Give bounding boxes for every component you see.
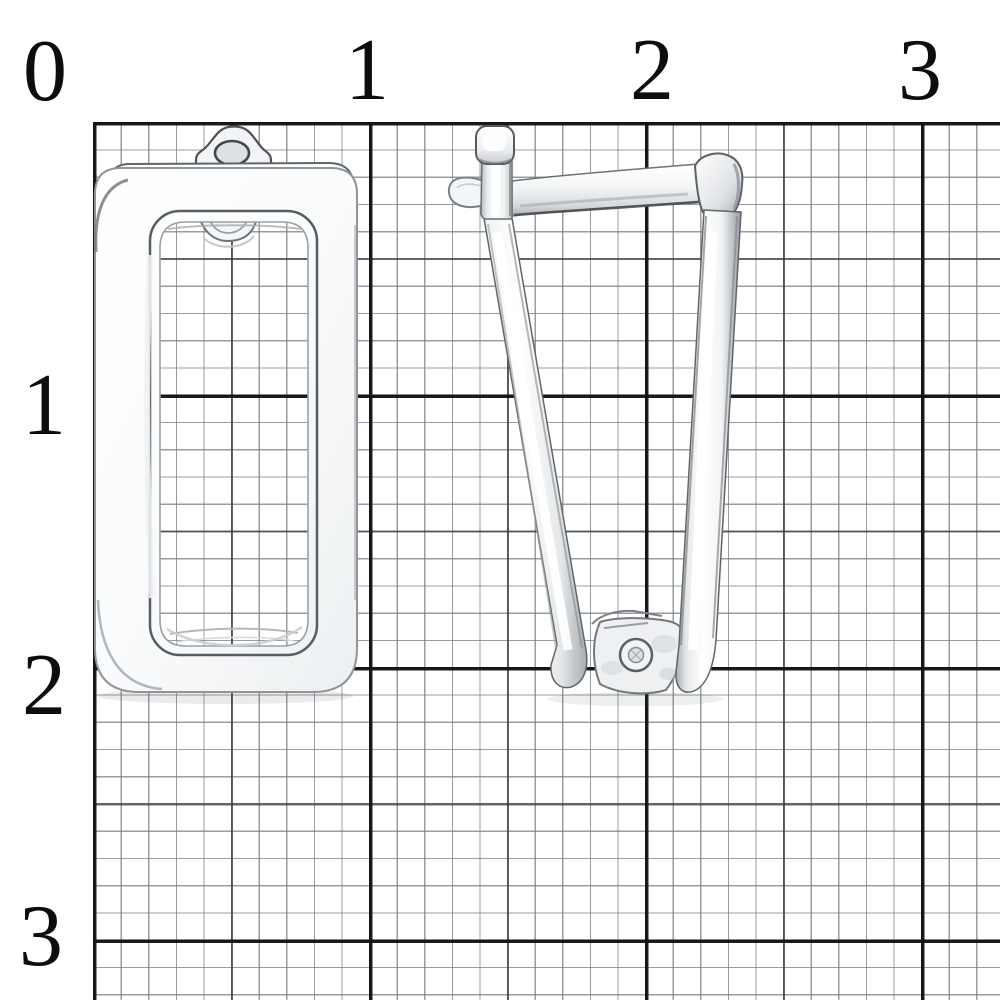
back-edge-line [170, 629, 298, 634]
earring-side-view [449, 126, 743, 706]
earring-front-view [95, 127, 357, 705]
clasp-pin-highlight [497, 232, 568, 650]
hinge-mottle-2 [651, 635, 677, 653]
frame-hole-stroke [160, 222, 308, 646]
loop-hole [215, 141, 249, 165]
clasp-post-cap-highlight [482, 131, 506, 151]
photo-canvas: 0 1 2 3 1 2 3 [0, 0, 1000, 1000]
hinge-mottle-3 [659, 668, 677, 680]
hinge-mottle-1 [601, 661, 623, 675]
earrings-photo [0, 0, 1000, 1000]
frame-inner-bevel [150, 211, 317, 655]
